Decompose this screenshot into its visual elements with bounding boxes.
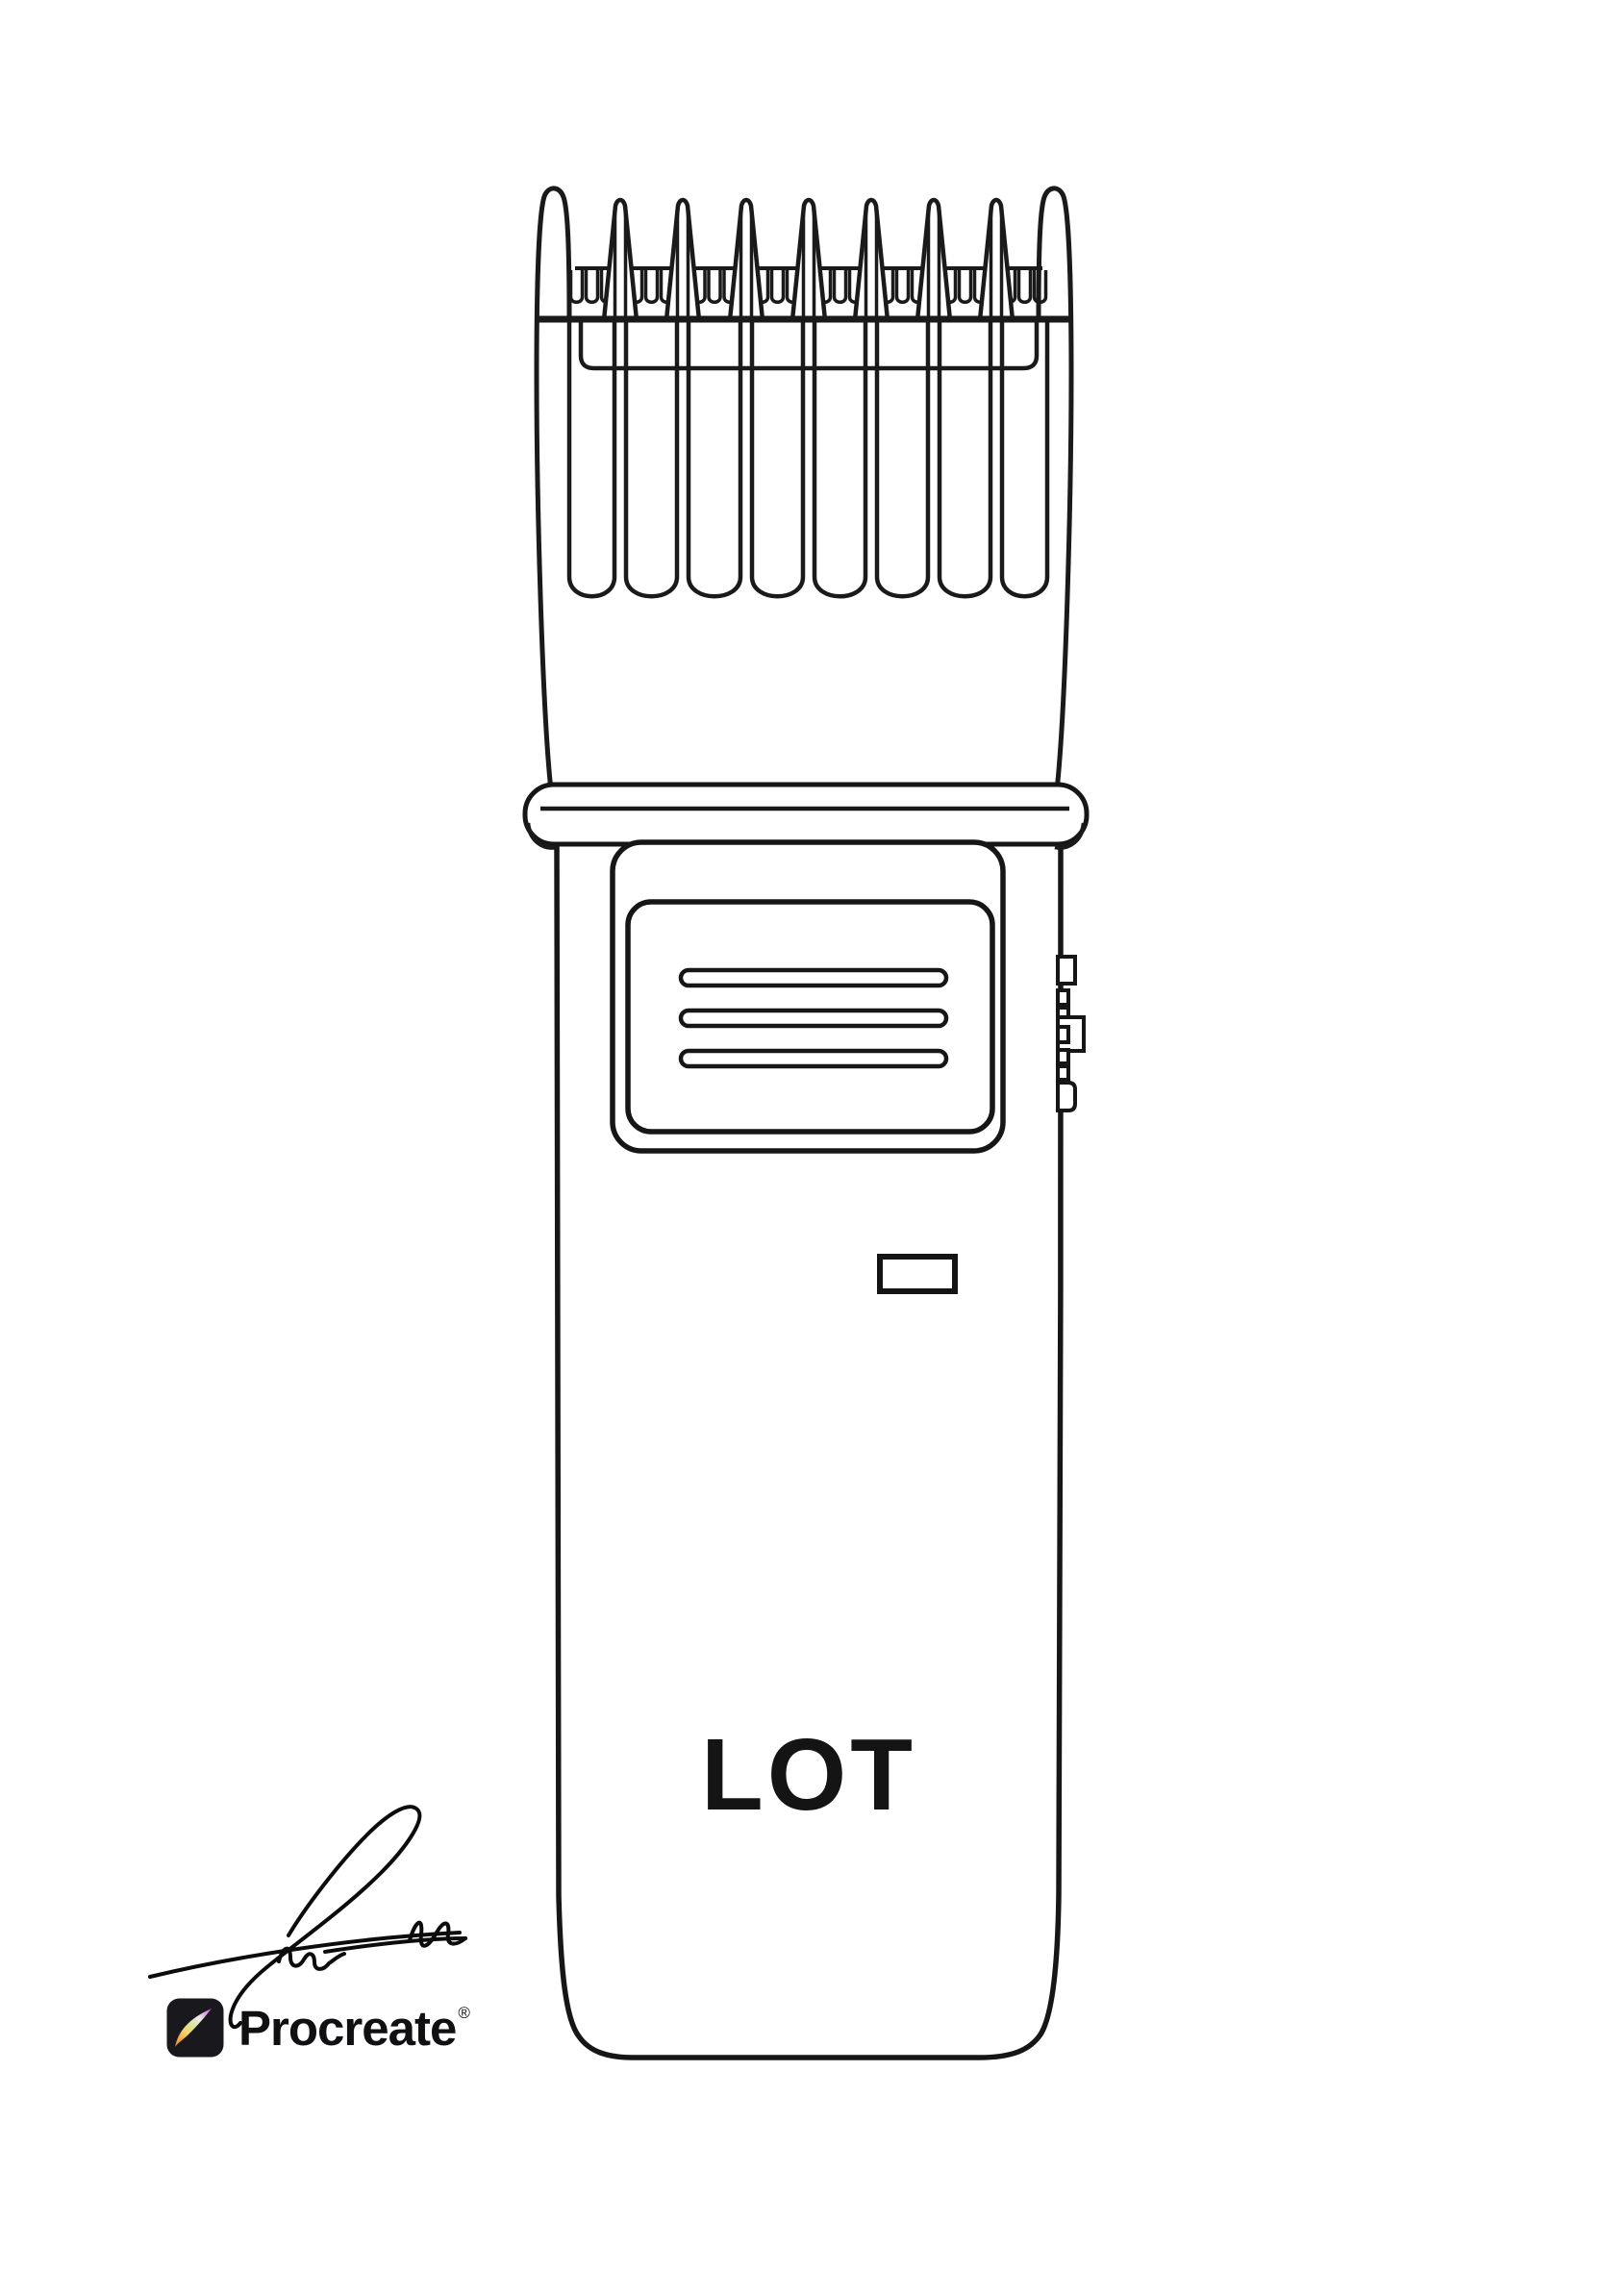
registered-mark: ® [458,2004,470,2023]
artboard: LOT [0,0,1604,2296]
procreate-logo-icon [166,1998,224,2058]
front-panel [613,842,1003,1151]
side-switch[interactable] [1058,957,1084,1111]
charge-indicator-window [880,1257,955,1291]
switch-notch-3 [1058,1027,1068,1042]
neck-collar [525,785,1087,848]
procreate-brand: Procreate ® [166,1998,470,2058]
switch-top-button[interactable] [1058,957,1075,984]
procreate-wordmark: Procreate [238,2004,456,2053]
comb-left-wall [537,188,569,790]
switch-notch-5 [1058,1066,1068,1080]
grip-slot-3 [681,1051,946,1066]
switch-notch-4 [1058,1050,1068,1063]
comb-fingers [569,320,1047,596]
switch-notch-1 [1058,990,1068,1005]
head-plate [581,321,1037,368]
guide-comb [537,188,1071,790]
grip-slot-2 [681,1011,946,1026]
comb-right-wall [1039,188,1071,790]
device-label: LOT [556,1724,1062,1826]
switch-bottom-tab [1058,1083,1075,1111]
grip-slot-1 [681,970,946,986]
collar-capsule [525,785,1087,844]
